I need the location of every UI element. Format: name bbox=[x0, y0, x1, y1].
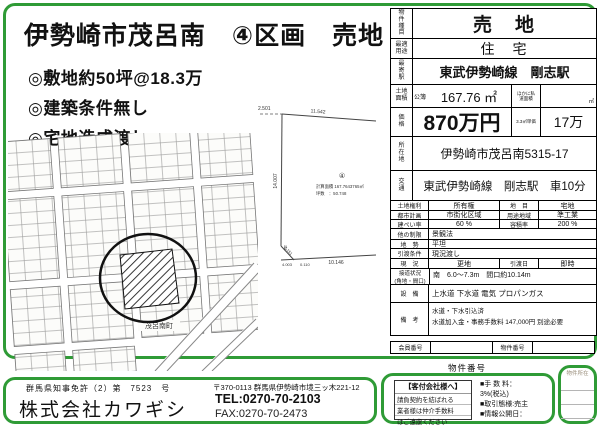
broker-notice-heading: 【客付会社様へ】 bbox=[395, 381, 471, 394]
remarks-line-2: 水道加入金・事務手数料 147,000円 別途必要 bbox=[432, 317, 596, 328]
label-station: 最寄駅 bbox=[391, 59, 413, 84]
dim-left: 14.007 bbox=[273, 173, 279, 189]
property-location-stamp-box: 物件所在 bbox=[558, 365, 597, 424]
fee-label: ■手 数 料： bbox=[480, 380, 528, 390]
label-unit-price: 3.3㎡単価 bbox=[511, 108, 541, 136]
broker-notice-box: 【客付会社様へ】 請負契約を結ばれる 業者様は仲介手数料 はご遠慮ください bbox=[394, 380, 472, 420]
label-property-number: 物件番号 bbox=[493, 342, 533, 353]
land-area-value: 167.76 ㎡ bbox=[427, 85, 511, 107]
row-remarks: 備 考 水道・下水引込済 水道加入金・事務手数料 147,000円 別途必要 bbox=[391, 303, 596, 335]
row-station: 最寄駅 東武伊勢崎線 剛志駅 bbox=[391, 59, 596, 85]
row-terrain: 地 勢 平坦 bbox=[391, 240, 596, 249]
flyer-page: 伊勢崎市茂呂南 ④区画 売地 ◎敷地約50坪@18.3万 ◎建築条件無し ◎宅地… bbox=[0, 0, 600, 427]
price-value: 870万円 bbox=[413, 108, 511, 136]
company-fax: FAX:0270-70-2473 bbox=[215, 408, 307, 420]
label-access: 交通 bbox=[391, 171, 413, 200]
broker-notice-line: 業者様は仲介手数料 bbox=[395, 405, 471, 416]
handover-condition-value: 現況渡し bbox=[429, 249, 596, 258]
subject-lot-hatched bbox=[120, 249, 179, 309]
label-road-frontage: 接道状況 bbox=[399, 269, 421, 277]
calc-area: 計算面積 167.7643765㎡ bbox=[316, 183, 364, 190]
unit-price-value: 17万 bbox=[541, 108, 596, 136]
label-land-area: 土地面積 bbox=[391, 85, 413, 107]
row-facilities: 設 備 上水道 下水道 電気 プロパンガス bbox=[391, 285, 596, 303]
fee-info: ■手 数 料： 3%(税込) ■取引態様:売主 ■情報公開日： bbox=[480, 380, 528, 421]
access-value: 東武伊勢崎線 剛志駅 車10分 bbox=[413, 171, 596, 200]
label-road-frontage-sub: (角地・間口) bbox=[394, 277, 425, 285]
label-handover-date: 引渡日 bbox=[500, 259, 539, 268]
company-info-panel: 群馬県知事免許（2）第 7523 号 株式会社カワギシ 〒370-0113 群馬… bbox=[3, 377, 377, 424]
broker-notice-line: はご遠慮ください bbox=[395, 416, 471, 426]
label-address: 所在地 bbox=[391, 137, 413, 170]
broker-info-panel: 【客付会社様へ】 請負契約を結ばれる 業者様は仲介手数料 はご遠慮ください ■手… bbox=[381, 373, 555, 424]
other-restrictions-value: 景観法 bbox=[429, 229, 596, 239]
register-label: 公簿 bbox=[413, 85, 427, 107]
lot-number: ④ bbox=[339, 172, 345, 180]
row-address: 所在地 伊勢崎市茂呂南5315-17 bbox=[391, 137, 596, 171]
selling-point: ◎敷地約50坪@18.3万 bbox=[28, 64, 203, 89]
label-remarks: 備 考 bbox=[391, 303, 429, 335]
location-stamp-line bbox=[561, 391, 594, 405]
label-coverage-ratio: 建ぺい率 bbox=[391, 220, 429, 228]
other-road-area-unit: ㎡ bbox=[541, 85, 596, 107]
station-value: 東武伊勢崎線 剛志駅 bbox=[413, 59, 596, 84]
dim-bottom-2: 0.110 bbox=[300, 262, 310, 267]
label-terrain: 地 勢 bbox=[391, 240, 429, 248]
parcel-blocks bbox=[8, 133, 258, 371]
dim-top: 11.542 bbox=[310, 108, 326, 115]
member-number-value bbox=[431, 342, 493, 353]
label-handover-condition: 引渡条件 bbox=[391, 249, 429, 258]
license-number: 群馬県知事免許（2）第 7523 号 bbox=[26, 383, 170, 394]
road-frontage-value: 南 6.0～7.3m 間口約10.14m bbox=[430, 269, 596, 284]
best-use-value: 住 宅 bbox=[413, 39, 596, 58]
row-other-restrictions: 他の制限 景観法 bbox=[391, 229, 596, 240]
label-best-use: 最適用途 bbox=[391, 39, 413, 58]
page-title: 伊勢崎市茂呂南 ④区画 売地 bbox=[18, 16, 390, 52]
dim-top-offset: 2.501 bbox=[258, 106, 271, 112]
floor-area-ratio-value: 200 % bbox=[539, 220, 596, 228]
row-land-area: 土地面積 公簿 167.76 ㎡ ほかに私道面積 ㎡ bbox=[391, 85, 596, 108]
label-property-type: 物件種目 bbox=[391, 9, 413, 38]
row-road-frontage: 接道状況 (角地・間口) 南 6.0～7.3m 間口約10.14m bbox=[391, 269, 596, 285]
selling-point: ◎建築条件無し bbox=[28, 94, 203, 119]
row-current-status: 現 況 更地 引渡日 即時 bbox=[391, 259, 596, 269]
address-value: 伊勢崎市茂呂南5315-17 bbox=[413, 137, 596, 170]
label-land-rights: 土地権利 bbox=[391, 201, 429, 210]
row-coverage-ratio: 建ぺい率 60 % 容積率 200 % bbox=[391, 220, 596, 229]
row-property-type: 物件種目 売 地 bbox=[391, 9, 596, 39]
row-best-use: 最適用途 住 宅 bbox=[391, 39, 596, 59]
handover-date-value: 即時 bbox=[539, 259, 596, 268]
row-city-planning: 都市計画 市街化区域 用途地域 準工業 bbox=[391, 211, 596, 220]
label-zoning: 用途地域 bbox=[500, 211, 539, 219]
zoning-value: 準工業 bbox=[539, 211, 596, 219]
location-stamp-label: 物件所在 bbox=[561, 368, 594, 377]
terrain-value: 平坦 bbox=[429, 240, 596, 248]
publish-date: ■情報公開日： bbox=[480, 410, 528, 420]
label-floor-area-ratio: 容積率 bbox=[500, 220, 539, 228]
land-category-value: 宅地 bbox=[539, 201, 596, 210]
location-stamp-line bbox=[561, 377, 594, 391]
area-map: 茂呂南町 bbox=[8, 133, 258, 371]
label-member-number: 会員番号 bbox=[391, 342, 431, 353]
fee-value: 3%(税込) bbox=[480, 390, 528, 400]
company-name: 株式会社カワギシ bbox=[19, 395, 187, 422]
label-city-planning: 都市計画 bbox=[391, 211, 429, 219]
city-planning-value: 市街化区域 bbox=[429, 211, 500, 219]
tsubo-count: 坪数 ：50.748 bbox=[316, 190, 347, 197]
coverage-ratio-value: 60 % bbox=[429, 220, 500, 228]
remarks-line-1: 水道・下水引込済 bbox=[432, 306, 596, 317]
row-access: 交通 東武伊勢崎線 剛志駅 車10分 bbox=[391, 171, 596, 201]
facilities-value: 上水道 下水道 電気 プロパンガス bbox=[429, 285, 596, 302]
transaction-type: ■取引態様:売主 bbox=[480, 400, 528, 410]
location-stamp-line bbox=[561, 405, 594, 419]
current-status-value: 更地 bbox=[429, 259, 500, 268]
dim-bottom-long: 10.146 bbox=[328, 260, 344, 266]
broker-notice-line: 請負契約を結ばれる bbox=[395, 394, 471, 405]
label-land-category: 地 目 bbox=[500, 201, 539, 210]
label-current-status: 現 況 bbox=[391, 259, 429, 268]
label-other-restrictions: 他の制限 bbox=[391, 229, 429, 239]
label-facilities: 設 備 bbox=[391, 285, 429, 302]
label-price: 価格 bbox=[391, 108, 413, 136]
company-tel: TEL:0270-70-2103 bbox=[215, 392, 321, 406]
label-other-road-area: ほかに私道面積 bbox=[511, 85, 541, 107]
dim-bottom-1: 4.003 bbox=[282, 262, 293, 267]
property-table: 物件種目 売 地 最適用途 住 宅 最寄駅 東武伊勢崎線 剛志駅 土地面積 公簿… bbox=[390, 8, 597, 336]
member-number-row: 会員番号 物件番号 bbox=[390, 341, 595, 354]
land-rights-value: 所有権 bbox=[429, 201, 500, 210]
property-type-value: 売 地 bbox=[413, 9, 596, 38]
row-price: 価格 870万円 3.3㎡単価 17万 bbox=[391, 108, 596, 137]
row-handover-condition: 引渡条件 現況渡し bbox=[391, 249, 596, 259]
property-number-value bbox=[533, 342, 594, 353]
survey-plot: 2.501 11.542 14.007 111 2.151 4.003 0.11… bbox=[254, 96, 376, 298]
